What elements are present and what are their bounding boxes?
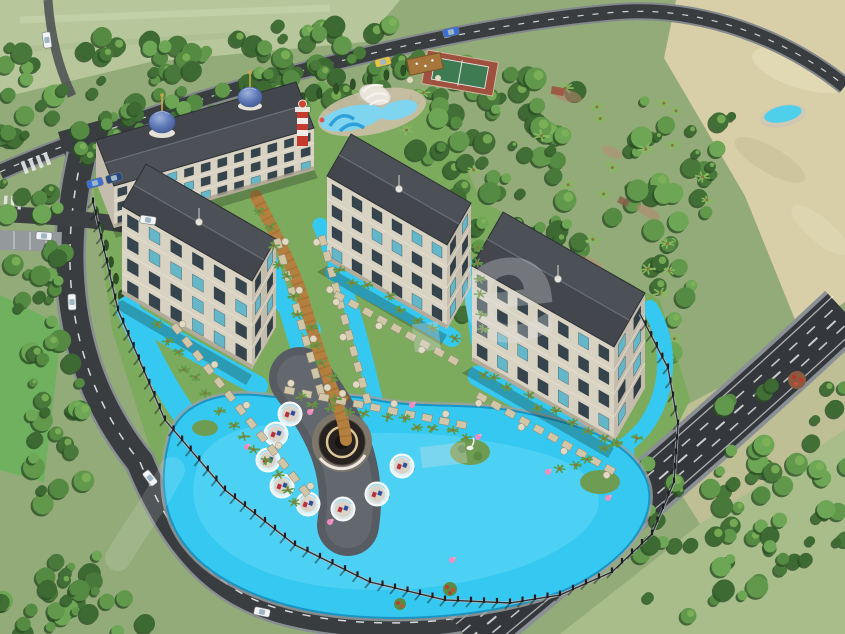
cabana (391, 455, 416, 478)
cabana (265, 423, 290, 446)
cabana (366, 483, 391, 506)
swan-statue (467, 446, 474, 450)
car (68, 294, 77, 310)
cabana (279, 403, 304, 426)
cabana (297, 493, 322, 516)
cabana (332, 498, 357, 521)
car (36, 232, 52, 241)
render-image: Aerial 3D architectural rendering of a r… (0, 0, 845, 634)
scene-svg: Aerial 3D architectural rendering of a r… (0, 0, 845, 634)
